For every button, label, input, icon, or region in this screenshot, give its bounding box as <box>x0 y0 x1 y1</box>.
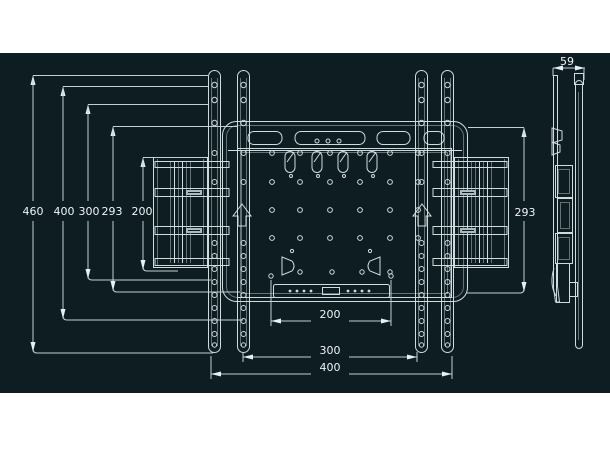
dim-label-200-left: 200 <box>132 205 153 218</box>
dim-label-293-right: 293 <box>515 206 536 219</box>
dim-label-460: 460 <box>23 205 44 218</box>
dim-label-300-bottom: 300 <box>320 344 341 357</box>
dim-label-200-bottom: 200 <box>320 308 341 321</box>
dim-label-293-left: 293 <box>102 205 123 218</box>
dim-label-300-left: 300 <box>79 205 100 218</box>
tv-mount-technical-drawing: 460 400 300 293 200 200 <box>0 0 610 450</box>
technical-drawing-page: 460 400 300 293 200 200 <box>0 0 610 450</box>
dim-label-400-bottom: 400 <box>320 361 341 374</box>
dim-label-59: 59 <box>560 55 574 68</box>
dim-label-400-left: 400 <box>54 205 75 218</box>
